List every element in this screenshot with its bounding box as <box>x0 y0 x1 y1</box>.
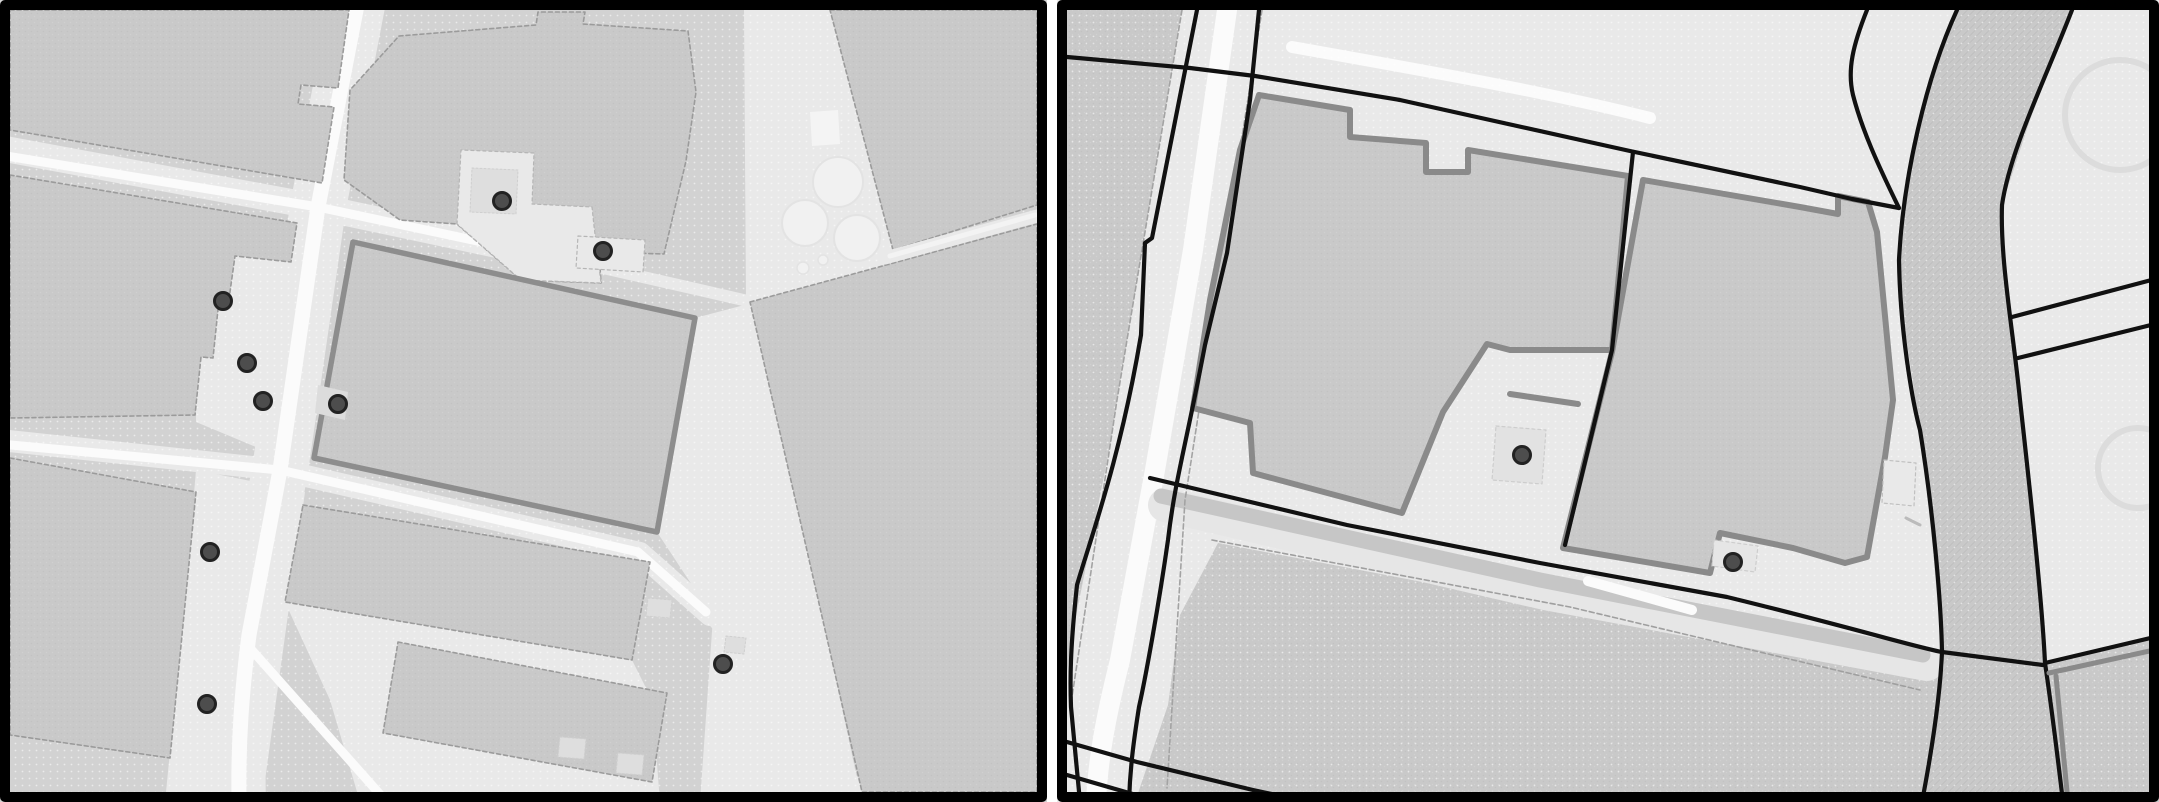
poi-marker <box>255 393 272 410</box>
poi-marker <box>199 696 216 713</box>
storage-tank-circle <box>834 215 880 261</box>
poi-marker <box>1514 447 1531 464</box>
map-panel-left[interactable] <box>0 0 1047 802</box>
yard-hatch-symbol <box>724 636 746 654</box>
base-map-image[interactable] <box>0 0 1047 802</box>
storage-tank-circle-small <box>797 262 809 274</box>
panel-divider-gap <box>1047 0 1057 802</box>
poi-marker <box>494 193 511 210</box>
map-panel-right[interactable] <box>1057 0 2159 802</box>
yard-hatch-symbol <box>616 753 644 775</box>
yard-hatch-symbol <box>558 737 586 759</box>
map-comparison-container <box>0 0 2159 802</box>
storage-tank-circle-small <box>818 255 828 265</box>
storage-tank-circle <box>813 157 863 207</box>
poi-marker <box>215 293 232 310</box>
poi-marker <box>202 544 219 561</box>
courtyard-hatch-symbol <box>470 168 518 214</box>
poi-marker <box>330 396 347 413</box>
storage-tank-circle <box>782 200 828 246</box>
poi-marker <box>715 656 732 673</box>
overlay-map-image[interactable] <box>1057 0 2159 802</box>
poi-marker <box>595 243 612 260</box>
poi-marker <box>1725 554 1742 571</box>
small-courtyard-northeast <box>1882 460 1916 506</box>
poi-marker <box>239 355 256 372</box>
tank-yard-structure <box>810 110 840 146</box>
yard-hatch-symbol <box>646 598 672 618</box>
building-block-southwest <box>10 458 196 758</box>
